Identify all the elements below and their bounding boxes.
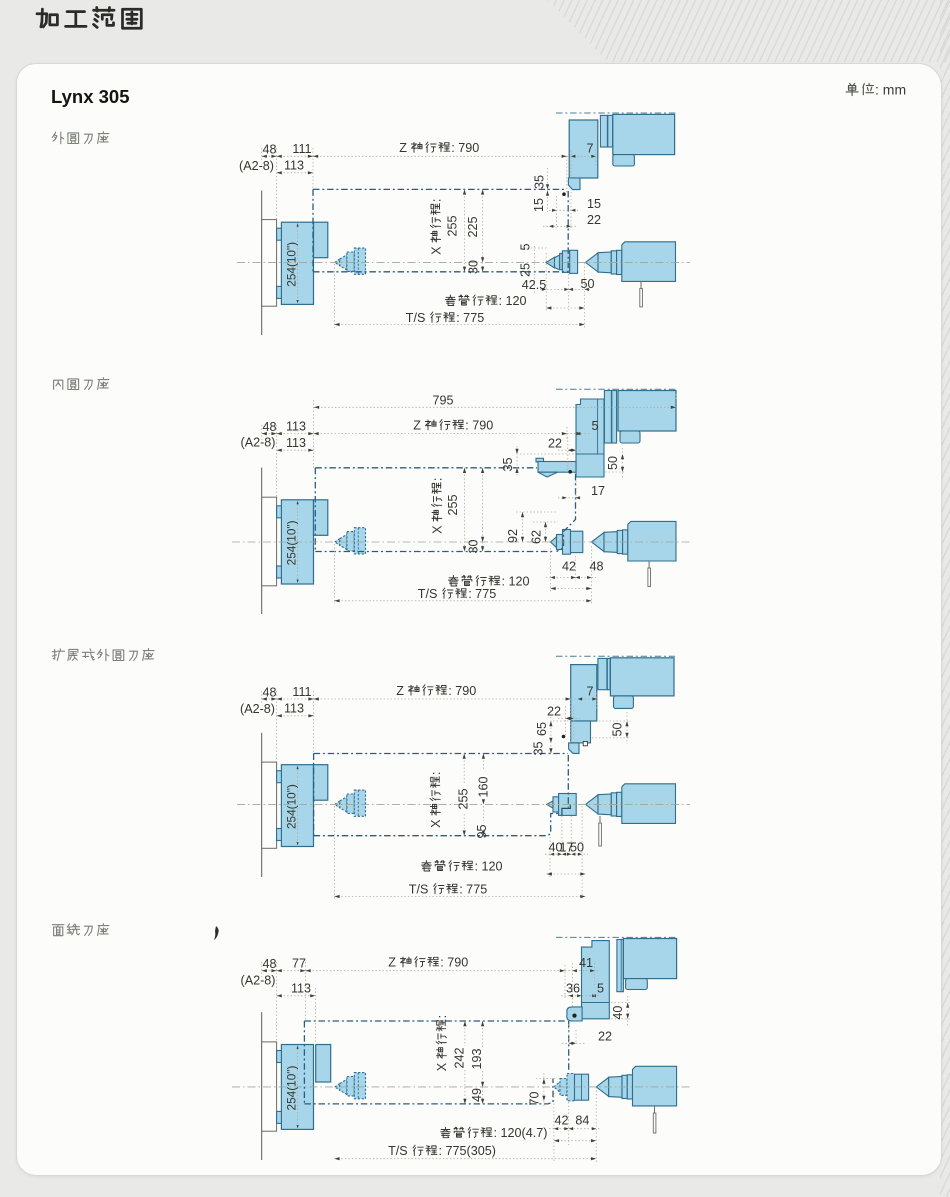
svg-text:225: 225 xyxy=(466,216,480,237)
svg-text:30: 30 xyxy=(467,539,481,553)
svg-text:: 775: : 775 xyxy=(459,883,487,897)
svg-text:X: X xyxy=(435,1062,449,1071)
svg-text:36: 36 xyxy=(566,981,580,995)
svg-text:795: 795 xyxy=(432,393,453,407)
svg-text:5: 5 xyxy=(519,243,533,250)
svg-text:15: 15 xyxy=(532,198,546,212)
svg-text:48: 48 xyxy=(589,560,603,574)
svg-text:160: 160 xyxy=(477,776,491,797)
svg-text:30: 30 xyxy=(467,260,481,274)
svg-text:48: 48 xyxy=(262,957,276,971)
svg-text:65: 65 xyxy=(535,722,549,736)
svg-text:48: 48 xyxy=(262,143,276,157)
svg-text:40: 40 xyxy=(611,1006,625,1020)
svg-text::: : xyxy=(435,1015,449,1019)
svg-text:70: 70 xyxy=(528,1091,542,1105)
svg-text:113: 113 xyxy=(284,158,304,172)
svg-text:22: 22 xyxy=(548,436,562,450)
svg-text:: 775(305): : 775(305) xyxy=(439,1144,496,1158)
svg-text:(A2-8): (A2-8) xyxy=(241,974,276,988)
svg-text:50: 50 xyxy=(580,277,594,291)
svg-text:255: 255 xyxy=(457,788,471,809)
svg-text:5: 5 xyxy=(591,419,598,433)
svg-text:193: 193 xyxy=(470,1048,484,1069)
svg-text:: 120(4.7): : 120(4.7) xyxy=(494,1126,548,1140)
svg-text:48: 48 xyxy=(262,685,276,699)
svg-text:: 790: : 790 xyxy=(465,419,493,433)
svg-text:(A2-8): (A2-8) xyxy=(239,159,274,173)
svg-text:113: 113 xyxy=(286,419,306,433)
svg-text:35: 35 xyxy=(501,457,515,471)
svg-text:: 775: : 775 xyxy=(456,311,484,325)
svg-text:254(10"): 254(10") xyxy=(285,520,299,565)
svg-text:22: 22 xyxy=(547,705,561,719)
svg-text:92: 92 xyxy=(506,529,520,543)
svg-text:42.5: 42.5 xyxy=(522,278,547,292)
svg-text:(A2-8): (A2-8) xyxy=(240,702,275,716)
svg-text:113: 113 xyxy=(286,436,306,450)
svg-text:7: 7 xyxy=(586,684,593,698)
svg-text:50: 50 xyxy=(570,841,584,855)
svg-text:: 790: : 790 xyxy=(448,684,476,698)
svg-text:77: 77 xyxy=(292,956,306,970)
svg-text:7: 7 xyxy=(586,142,593,156)
svg-text:42: 42 xyxy=(562,560,576,574)
svg-text:95: 95 xyxy=(475,824,489,838)
svg-text:T/S: T/S xyxy=(388,1144,408,1158)
svg-text:22: 22 xyxy=(598,1029,612,1043)
svg-text:25: 25 xyxy=(519,263,533,277)
svg-text:35: 35 xyxy=(532,741,546,755)
svg-text:15: 15 xyxy=(587,197,601,211)
svg-text:Z: Z xyxy=(396,684,404,698)
svg-text::: : xyxy=(431,478,445,482)
svg-text:Z: Z xyxy=(413,419,421,433)
svg-text:T/S: T/S xyxy=(418,587,438,601)
svg-text:T/S: T/S xyxy=(406,311,426,325)
svg-text:T/S: T/S xyxy=(409,883,429,897)
svg-text:255: 255 xyxy=(445,215,459,236)
svg-text:255: 255 xyxy=(446,494,460,515)
svg-text:49: 49 xyxy=(470,1088,484,1102)
svg-text:: 790: : 790 xyxy=(451,141,479,155)
svg-text:50: 50 xyxy=(606,456,620,470)
svg-text:254(10"): 254(10") xyxy=(285,1066,299,1111)
svg-text::: : xyxy=(429,199,443,203)
svg-text:111: 111 xyxy=(292,142,311,156)
svg-text:: 120: : 120 xyxy=(502,575,530,589)
svg-text:: 775: : 775 xyxy=(468,587,496,601)
svg-text:22: 22 xyxy=(587,213,601,227)
svg-text:X: X xyxy=(429,246,443,255)
svg-text:X: X xyxy=(429,819,443,828)
svg-text:50: 50 xyxy=(611,722,625,736)
svg-text:42: 42 xyxy=(554,1114,568,1128)
svg-text:(A2-8): (A2-8) xyxy=(241,435,276,449)
svg-text:254(10"): 254(10") xyxy=(285,242,299,287)
svg-text:: 120: : 120 xyxy=(475,860,503,874)
svg-text:242: 242 xyxy=(453,1047,467,1068)
svg-text:84: 84 xyxy=(575,1114,589,1128)
svg-text:Z: Z xyxy=(399,141,407,155)
svg-text:: 120: : 120 xyxy=(499,294,527,308)
svg-text:113: 113 xyxy=(284,701,304,715)
svg-text:17: 17 xyxy=(591,484,605,498)
svg-text:254(10"): 254(10") xyxy=(285,784,299,829)
svg-text:62: 62 xyxy=(530,530,544,544)
svg-text:X: X xyxy=(431,525,445,534)
svg-text:: 790: : 790 xyxy=(440,956,468,970)
svg-text:111: 111 xyxy=(292,685,311,699)
svg-text:113: 113 xyxy=(291,981,311,995)
svg-text:41: 41 xyxy=(579,956,593,970)
svg-text:48: 48 xyxy=(262,420,276,434)
svg-text:35: 35 xyxy=(533,175,547,189)
svg-text::: : xyxy=(429,772,443,776)
svg-text:5: 5 xyxy=(597,981,604,995)
svg-text:Z: Z xyxy=(388,956,396,970)
